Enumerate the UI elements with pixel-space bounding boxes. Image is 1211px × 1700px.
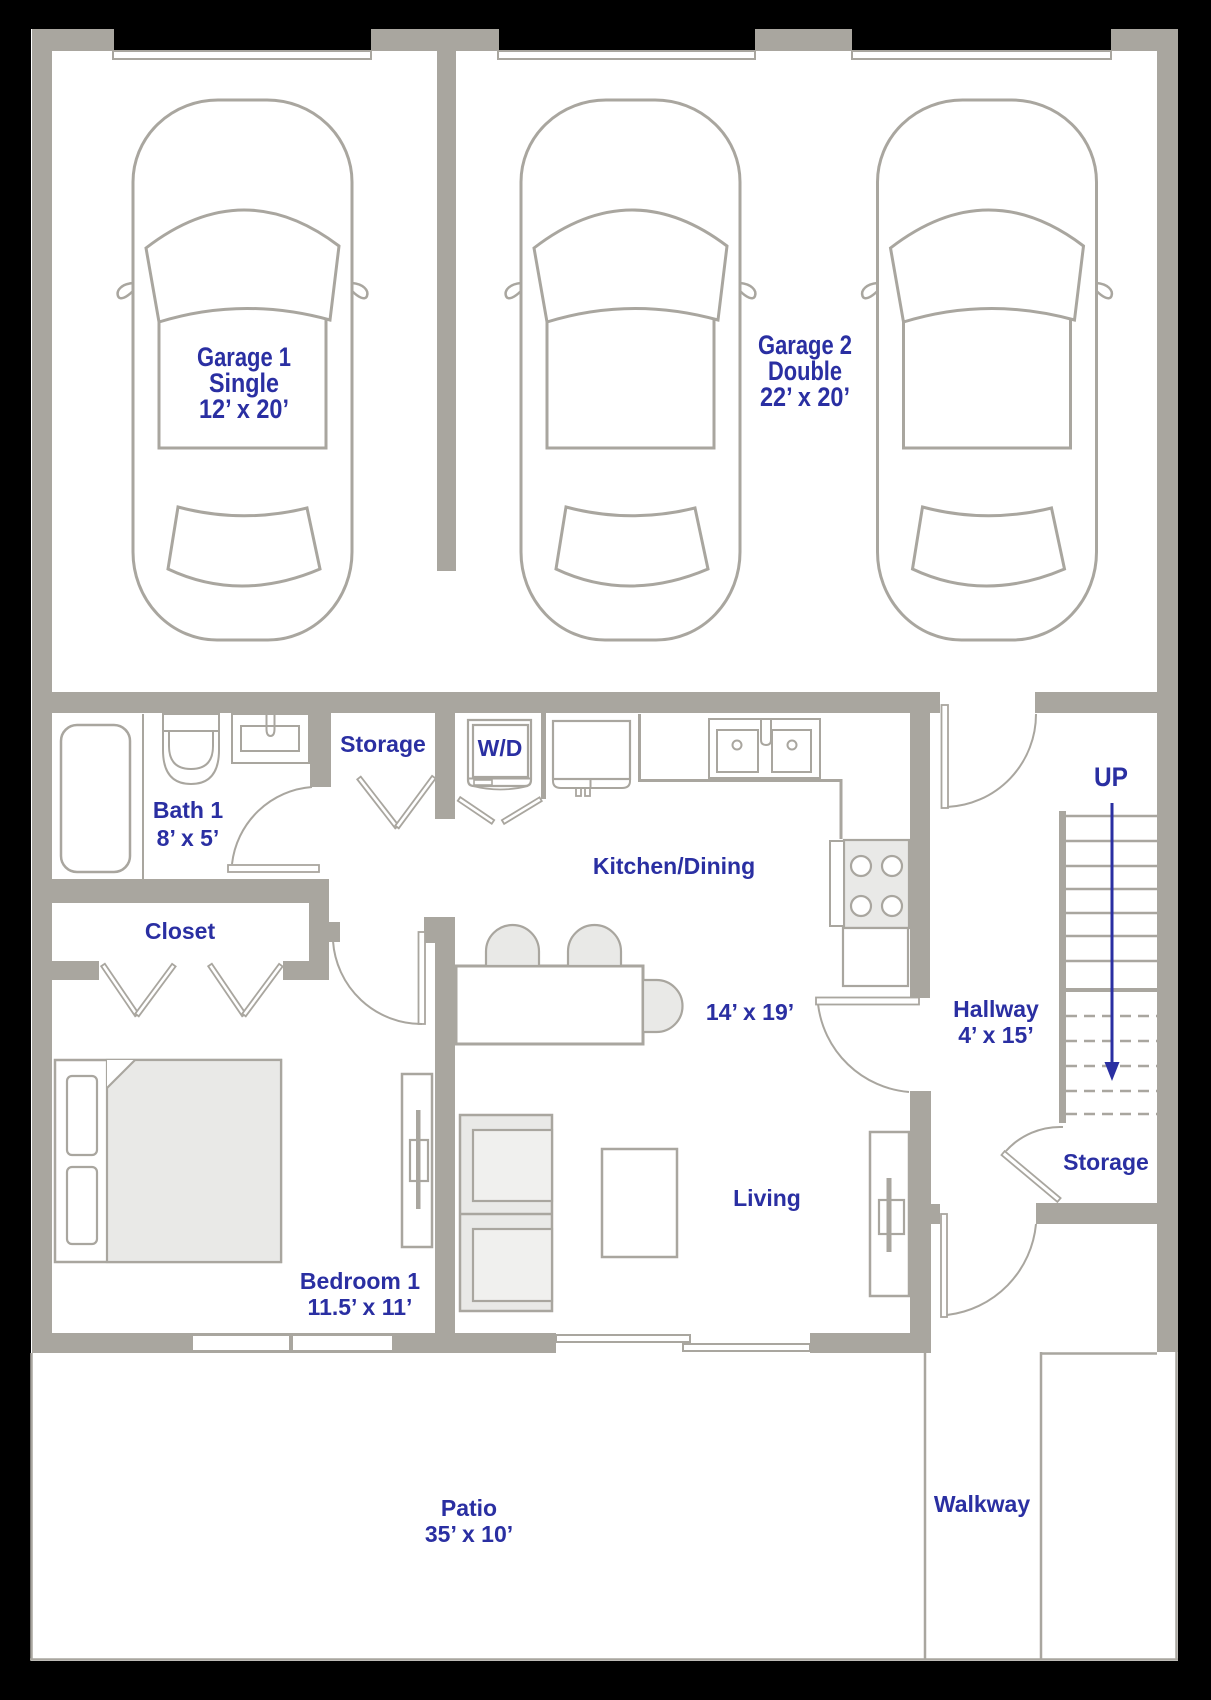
svg-text:Living: Living (733, 1185, 801, 1211)
svg-text:Patio: Patio (441, 1495, 497, 1521)
svg-text:Storage: Storage (340, 731, 426, 757)
svg-text:Walkway: Walkway (934, 1491, 1031, 1517)
svg-text:W/D: W/D (478, 735, 523, 761)
svg-text:Hallway: Hallway (953, 996, 1039, 1022)
svg-text:14’ x 19’: 14’ x 19’ (706, 999, 794, 1025)
svg-text:UP: UP (1094, 762, 1128, 792)
svg-text:35’ x 10’: 35’ x 10’ (425, 1521, 513, 1547)
svg-text:22’ x 20’: 22’ x 20’ (760, 382, 850, 412)
svg-text:Kitchen/Dining: Kitchen/Dining (593, 853, 755, 879)
svg-text:Storage: Storage (1063, 1149, 1149, 1175)
svg-text:Bedroom 1: Bedroom 1 (300, 1268, 420, 1294)
svg-text:Closet: Closet (145, 918, 216, 944)
svg-text:12’ x 20’: 12’ x 20’ (199, 394, 289, 424)
svg-text:Bath 1: Bath 1 (153, 797, 224, 823)
svg-text:4’ x 15’: 4’ x 15’ (958, 1022, 1033, 1048)
svg-text:8’ x 5’: 8’ x 5’ (157, 825, 220, 851)
svg-text:11.5’ x 11’: 11.5’ x 11’ (308, 1294, 413, 1320)
